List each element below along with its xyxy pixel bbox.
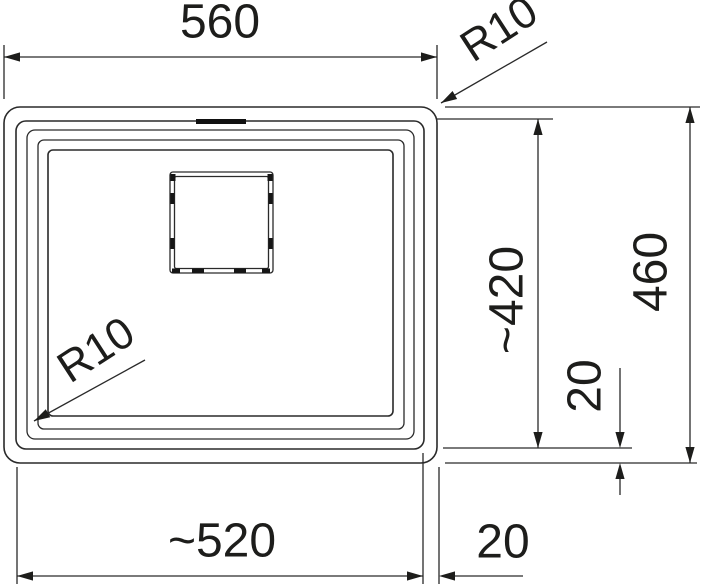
sink-rim-line-1 xyxy=(16,121,424,449)
sink-outer-edge xyxy=(4,107,437,463)
dim-label-bowl-depth: ~420 xyxy=(481,246,534,354)
tap-hole-marking xyxy=(196,119,246,124)
dimension-overall-width: 560 xyxy=(4,0,437,99)
dim-label-rim-offset-right: 20 xyxy=(559,359,612,412)
dim-label-rim-offset-bottom: 20 xyxy=(476,516,529,569)
dim-label-bowl-width: ~520 xyxy=(168,515,276,568)
sink-rim-line-3 xyxy=(38,140,404,429)
dimension-radius-top-right: R10 xyxy=(439,0,547,107)
drawing-canvas: 560 R10 460 ~420 xyxy=(0,0,702,586)
drain-square xyxy=(170,172,273,273)
sink-dimension-drawing: 560 R10 460 ~420 xyxy=(0,0,702,586)
dim-label-radius-top-right: R10 xyxy=(452,0,546,72)
dim-label-overall-width: 560 xyxy=(180,0,260,49)
dimension-rim-offset-bottom: 20 xyxy=(439,467,530,584)
dim-label-radius-bowl: R10 xyxy=(49,307,143,392)
dim-label-overall-depth: 460 xyxy=(625,232,678,312)
drain-outer-edge xyxy=(170,172,273,273)
dimension-bowl-width: ~520 xyxy=(17,453,423,584)
dimension-rim-offset-right: 20 xyxy=(559,359,625,495)
sink-outline xyxy=(4,107,437,463)
drain-inner-edge xyxy=(175,177,269,269)
